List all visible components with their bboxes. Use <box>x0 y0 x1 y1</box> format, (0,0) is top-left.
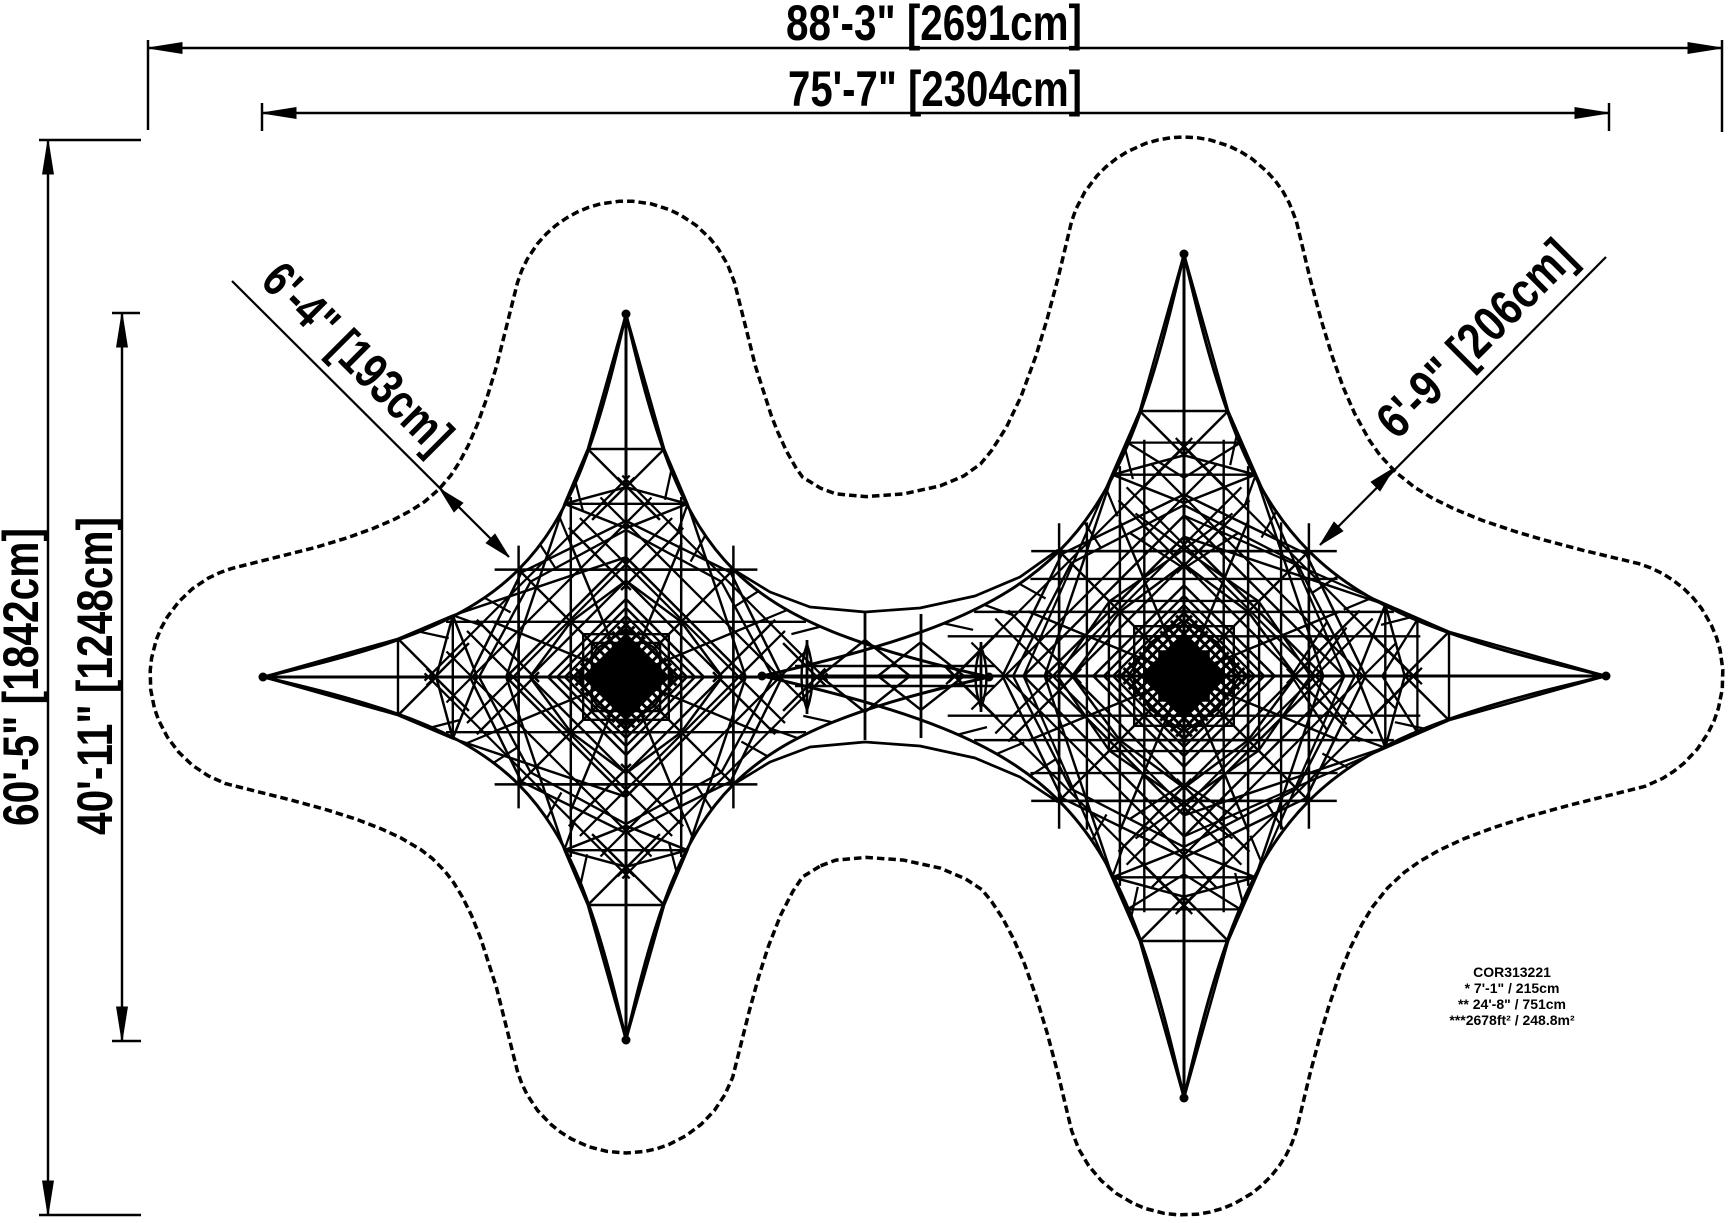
svg-text:***2678ft² / 248.8m²: ***2678ft² / 248.8m² <box>1449 1012 1575 1028</box>
svg-text:** 24'-8" / 751cm: ** 24'-8" / 751cm <box>1458 996 1566 1012</box>
svg-text:40'-11" [1248cm]: 40'-11" [1248cm] <box>67 517 123 835</box>
svg-text:* 7'-1" / 215cm: * 7'-1" / 215cm <box>1465 980 1560 996</box>
svg-text:COR313221: COR313221 <box>1473 964 1551 980</box>
svg-text:88'-3" [2691cm]: 88'-3" [2691cm] <box>786 0 1082 51</box>
svg-text:75'-7" [2304cm]: 75'-7" [2304cm] <box>788 61 1082 117</box>
svg-text:60'-5" [1842cm]: 60'-5" [1842cm] <box>0 528 49 826</box>
